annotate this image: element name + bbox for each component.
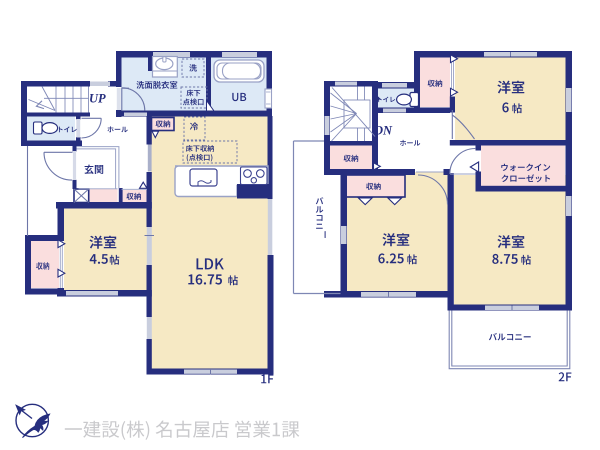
svg-text:UP: UP — [89, 92, 106, 106]
svg-text:DN: DN — [373, 124, 393, 138]
